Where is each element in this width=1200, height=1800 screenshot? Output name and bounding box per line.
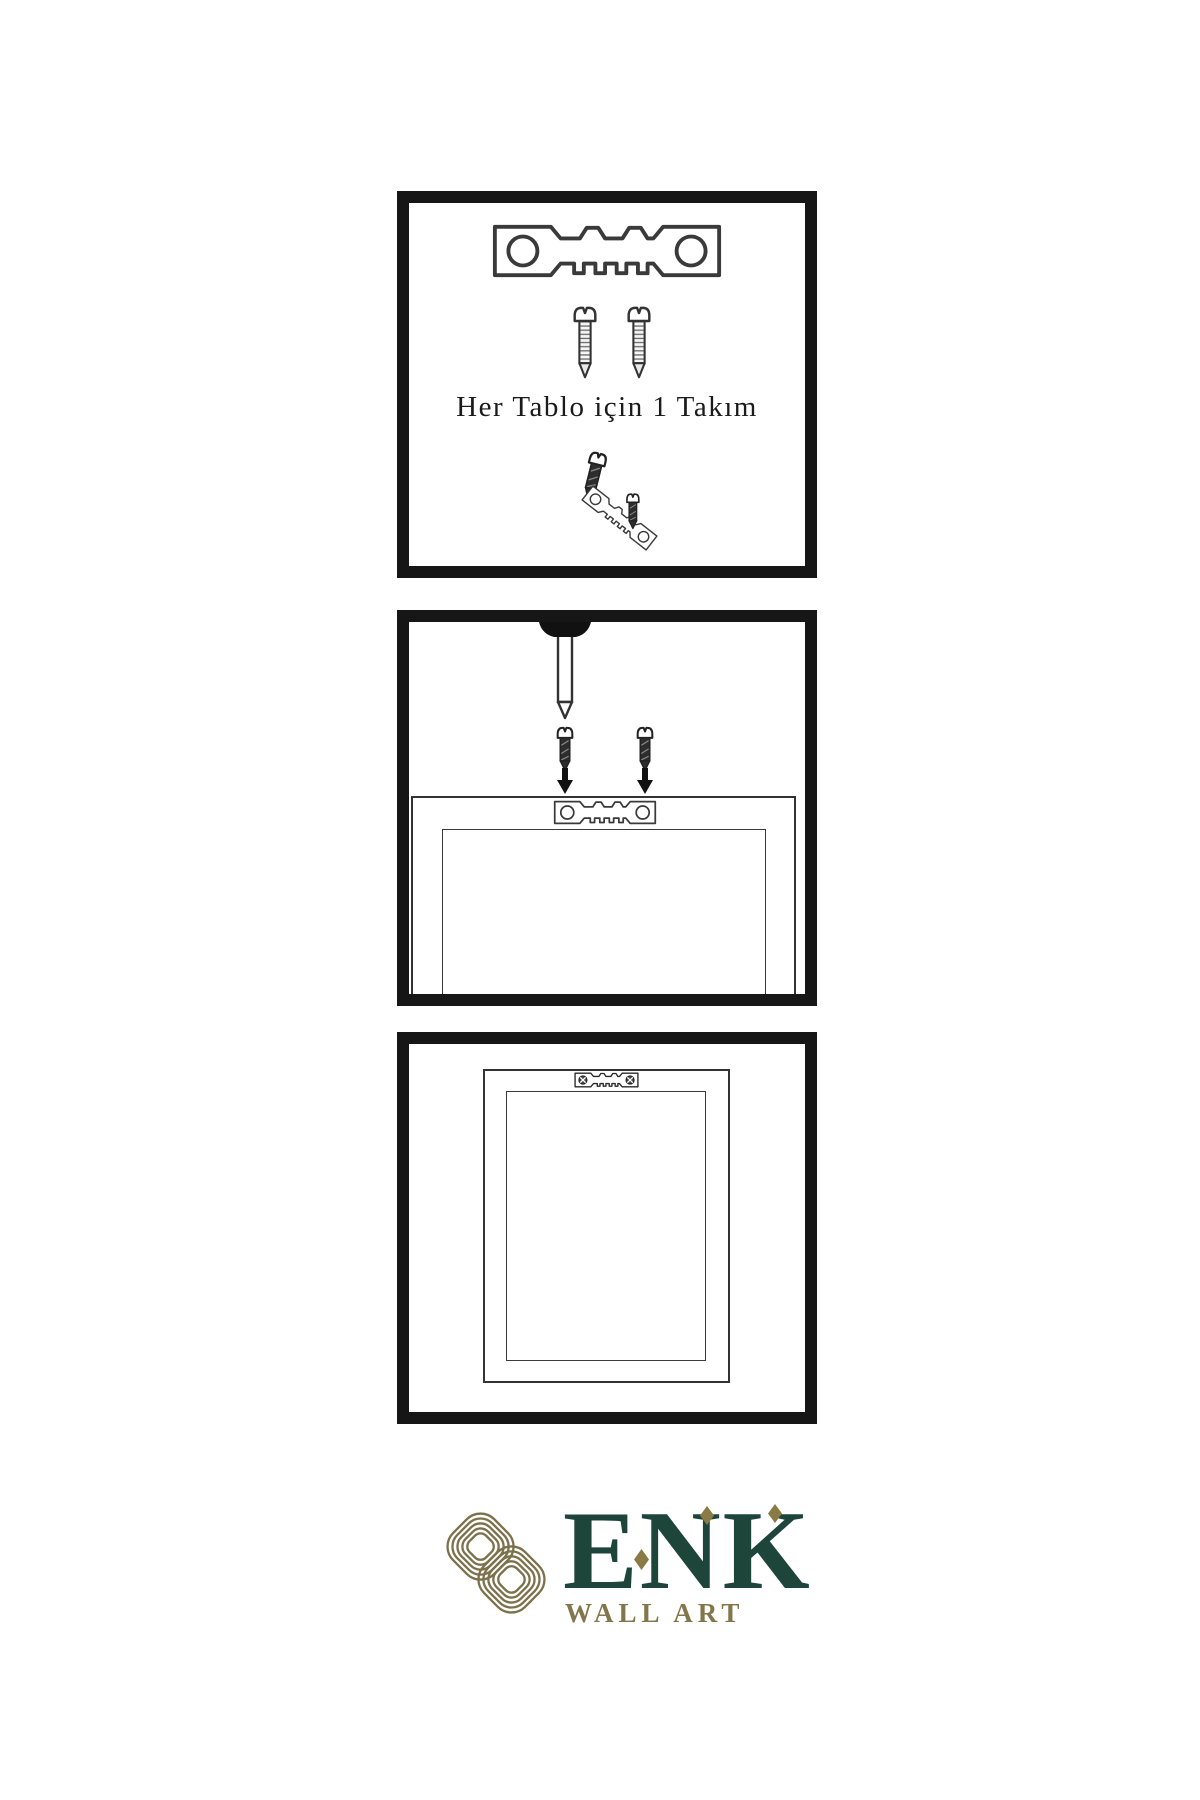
screw-icon	[624, 303, 654, 384]
panel-hardware-kit: Her Tablo için 1 Takım	[397, 191, 817, 578]
brand-subtitle: WALL ART	[565, 1598, 744, 1629]
frame-back-inner	[442, 829, 766, 996]
angled-sawtooth-hanger-with-screws-icon	[572, 446, 672, 558]
arrow-down-icon	[557, 768, 573, 794]
panel-hung-frame	[397, 1032, 817, 1424]
arrow-down-icon	[637, 768, 653, 794]
screw-icon	[570, 303, 600, 384]
sawtooth-hanger-icon	[488, 222, 726, 280]
panel-mounting-step	[397, 610, 817, 1006]
knot-logo-icon	[438, 1500, 554, 1626]
frame-back-inner	[506, 1091, 706, 1361]
small-screw-icon	[634, 725, 656, 771]
kit-caption: Her Tablo için 1 Takım	[409, 391, 805, 424]
sawtooth-hanger-screwed-icon	[574, 1071, 639, 1089]
nail-icon	[517, 622, 613, 722]
small-screw-icon	[554, 725, 576, 771]
instruction-sheet: Her Tablo için 1 Takım	[0, 0, 1200, 1800]
sawtooth-hanger-icon	[553, 799, 657, 826]
